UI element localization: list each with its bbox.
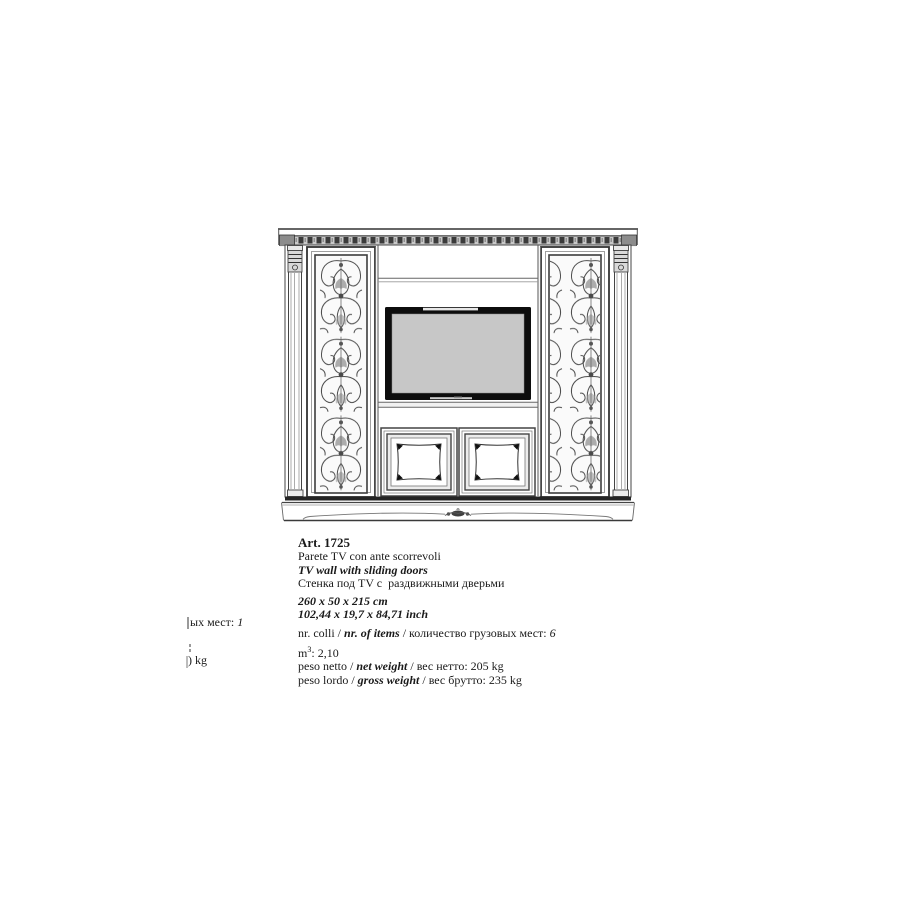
tv-wall-unit-svg — [278, 228, 638, 524]
scan-edge-artifact — [189, 649, 191, 652]
left-door — [381, 428, 457, 496]
volume-value: 2,10 — [318, 646, 339, 660]
tv-logo-dot — [454, 397, 462, 399]
net-label-ru: вес нетто — [417, 659, 465, 673]
apron-scroll-left — [310, 513, 445, 516]
cutoff-text-line2: ) kg — [188, 653, 207, 668]
tv — [385, 307, 531, 400]
cutoff-line1-text: ых мест: — [190, 615, 234, 629]
product-name-ru: Стенка под TV с раздвижными дверьми — [298, 577, 628, 590]
tv-shelf — [379, 403, 538, 407]
dentil-band — [280, 236, 636, 245]
right-carved-panel — [541, 247, 609, 497]
bottom-rail — [285, 497, 631, 501]
gross-weight-value: 235 kg — [489, 673, 522, 687]
cutoff-line1-value: 1 — [237, 615, 243, 629]
left-capital — [288, 251, 302, 273]
net-label-it: peso netto — [298, 659, 347, 673]
items-label-ru: количество грузовых мест — [409, 626, 543, 640]
apron-scroll-right — [471, 513, 606, 516]
cornice-corner-right — [622, 235, 637, 246]
scan-edge-artifact — [189, 644, 191, 647]
product-name-it: Parete TV con ante scorrevoli — [298, 550, 628, 563]
items-value: 6 — [550, 626, 556, 640]
tv-screen — [392, 314, 524, 393]
base-plinth — [282, 497, 635, 521]
items-label-it: nr. colli — [298, 626, 335, 640]
items-label-en: nr. of items — [344, 626, 400, 640]
gross-label-en: gross weight — [358, 673, 420, 687]
separator: / — [419, 673, 428, 687]
tv-bezel-highlight — [423, 308, 478, 311]
cornice-corner-left — [280, 235, 295, 246]
tv-wall-unit-drawing — [278, 228, 638, 524]
net-weight-value: 205 kg — [471, 659, 504, 673]
right-door — [459, 428, 535, 496]
cutoff-text-line1: ых мест: 1 — [190, 615, 243, 630]
separator: / — [335, 626, 344, 640]
left-carved-panel — [307, 247, 375, 497]
separator: / — [407, 659, 416, 673]
gross-label-ru: вес брутто — [429, 673, 483, 687]
right-capital — [614, 251, 628, 273]
apron-center-ornament — [445, 508, 471, 516]
product-spec-block: Art. 1725 Parete TV con ante scorrevoli … — [298, 536, 628, 687]
separator: / — [348, 673, 357, 687]
net-label-en: net weight — [356, 659, 407, 673]
volume-label: m — [298, 646, 307, 660]
gross-label-it: peso lordo — [298, 673, 348, 687]
size-inch: 102,44 x 19,7 x 84,71 inch — [298, 608, 628, 621]
separator: / — [400, 626, 409, 640]
product-art-number: Art. 1725 — [298, 536, 628, 549]
net-weight-line: peso netto / net weight / вес нетто: 205… — [298, 660, 628, 673]
catalog-page: { "palette": { "paper": "#ffffff", "ink"… — [0, 0, 900, 900]
gross-weight-line: peso lordo / gross weight / вес брутто: … — [298, 674, 628, 687]
product-name-en: TV wall with sliding doors — [298, 564, 628, 577]
volume-line: m3: 2,10 — [298, 647, 628, 660]
items-line: nr. colli / nr. of items / количество гр… — [298, 627, 628, 640]
separator: / — [347, 659, 356, 673]
scan-edge-artifact — [187, 617, 189, 629]
cornice — [278, 229, 638, 246]
size-cm: 260 x 50 x 215 cm — [298, 595, 628, 608]
